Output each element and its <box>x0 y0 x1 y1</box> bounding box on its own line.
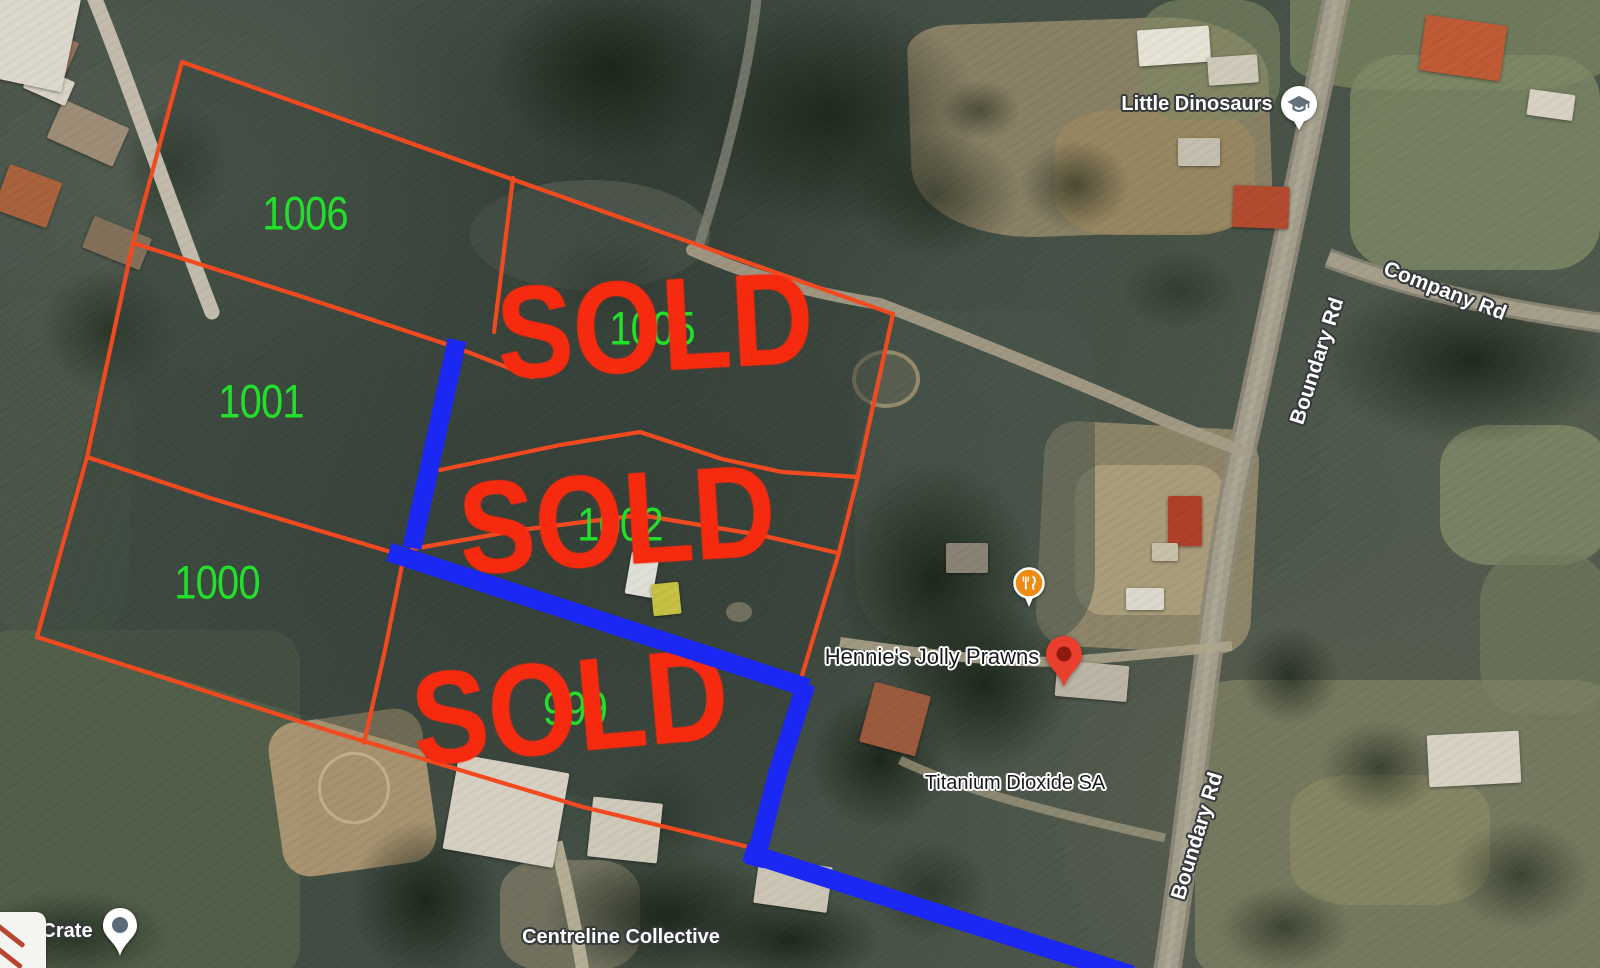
highlight-segment-diagonal-2 <box>745 852 1132 968</box>
highlight-segment-diagonal-1 <box>389 552 808 688</box>
sold-boundary-highlight <box>0 0 1600 968</box>
satellite-map[interactable]: Little Dinosaurs Company Rd Boundary Rd … <box>0 0 1600 968</box>
highlight-segment-vertical-1 <box>412 340 457 548</box>
highlight-segment-vertical-2 <box>754 684 806 866</box>
